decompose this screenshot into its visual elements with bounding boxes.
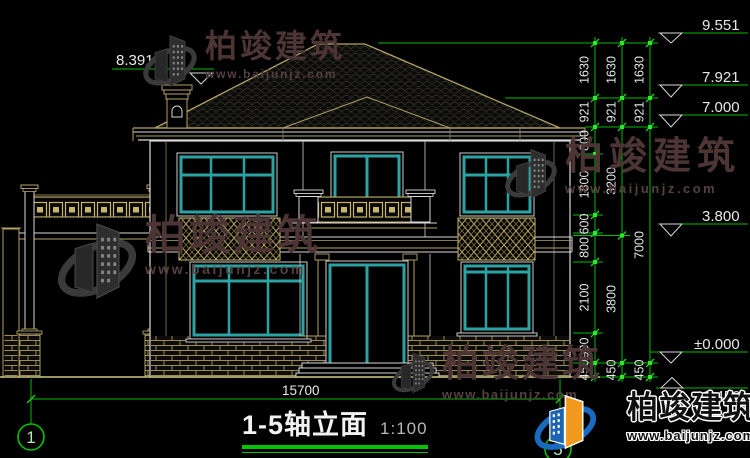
window-sill [457, 333, 537, 336]
left-porch-structure [1, 185, 168, 377]
window-1f-left [186, 262, 311, 342]
dim-label: 800 [578, 130, 592, 151]
balcony-post [299, 197, 318, 223]
window-2f-left [177, 153, 277, 216]
dim-label: 900 [578, 338, 592, 359]
dim-label: 450 [605, 360, 619, 381]
lattice-panel-right [458, 218, 535, 260]
level-outdoor-ground: -0.450 [698, 388, 741, 405]
eave-fascia [133, 128, 585, 141]
level-eave-top: 7.921 [702, 69, 740, 86]
dim-label: 450 [578, 360, 592, 381]
drawing-scale: 1:100 [380, 419, 428, 439]
porch-pier [19, 334, 40, 377]
balcony-fret-railing [318, 197, 411, 222]
dim-label: 1630 [633, 56, 647, 84]
dim-label: 7000 [633, 231, 647, 259]
drawing-title: 1-5轴立面 [242, 403, 368, 442]
roof [133, 44, 585, 141]
window-sill [186, 339, 311, 342]
drawing-title-block: 1-5轴立面 1:100 [242, 403, 428, 453]
dimension-labels: 1630 921 800 1800 600 800 2100 900 450 1… [578, 56, 647, 380]
level-roof-top: 9.551 [702, 17, 740, 34]
level-eave-bottom: 7.000 [702, 99, 740, 116]
dim-label: 1630 [578, 56, 592, 84]
dim-label: 921 [578, 102, 592, 123]
title-underline-thin [242, 452, 428, 453]
dim-label: 600 [578, 214, 592, 235]
roof-hip [155, 44, 560, 128]
overall-width-dim: 15700 [282, 383, 320, 398]
porch-column [25, 191, 34, 331]
dim-label: 1630 [605, 56, 619, 84]
cad-viewport: 1630 921 800 1800 600 800 2100 900 450 1… [0, 0, 750, 458]
dim-label: 450 [633, 360, 647, 381]
dim-label: 800 [578, 237, 592, 258]
window-1f-right [457, 262, 537, 336]
level-zero: ±0.000 [694, 336, 740, 353]
elevation-canvas: 1630 921 800 1800 600 800 2100 900 450 1… [0, 0, 750, 458]
dim-label: 921 [633, 102, 647, 123]
dim-label: 2100 [578, 284, 592, 312]
level-second-floor: 3.800 [702, 208, 740, 225]
entrance-door [326, 261, 408, 367]
window-2f-right [460, 153, 534, 216]
dim-label: 3200 [605, 167, 619, 195]
dim-label: 921 [605, 102, 619, 123]
dim-label: 3800 [605, 285, 619, 313]
axis-number-left: 1 [26, 428, 35, 447]
lattice-panel-left [179, 218, 280, 260]
porch-fret-railing [34, 197, 151, 217]
axis-number-right: 5 [553, 440, 562, 458]
balcony-post [411, 197, 430, 223]
entrance-steps [296, 363, 439, 377]
title-underline-thick [242, 445, 428, 449]
dim-label: 1800 [578, 171, 592, 199]
level-chimney: 8.391 [116, 52, 154, 69]
balcony-door-2f [331, 152, 403, 204]
chimney [162, 85, 192, 128]
